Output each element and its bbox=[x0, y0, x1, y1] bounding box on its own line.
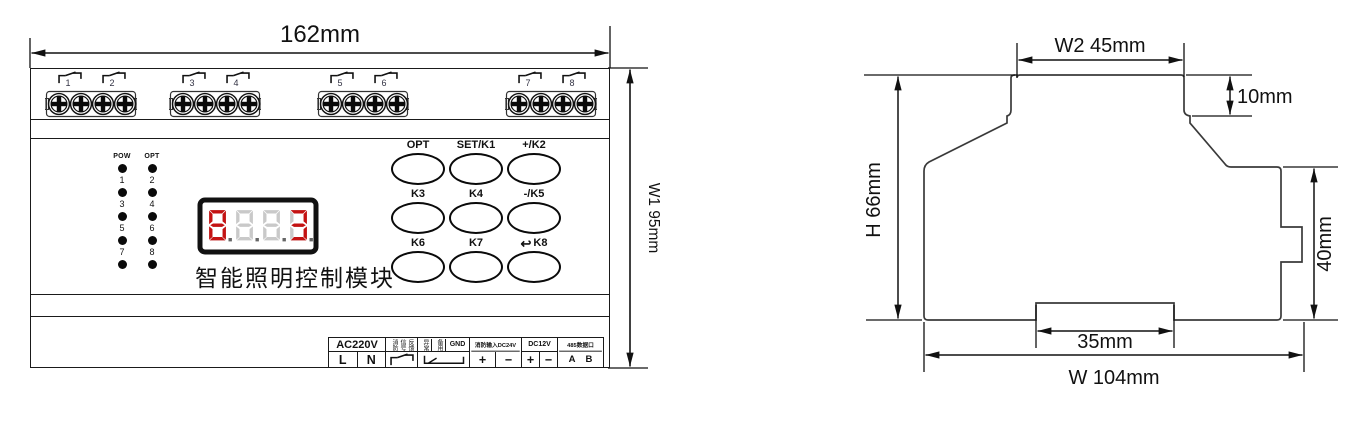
aux-gnd-terminal: 异常 备用 GND bbox=[418, 337, 470, 368]
key-k4-label: K4 bbox=[469, 188, 483, 201]
led-column-pow: POW 1 3 5 7 bbox=[107, 153, 137, 269]
led-number: 8 bbox=[149, 248, 154, 256]
pow-label: POW bbox=[113, 153, 131, 160]
terminal-group-1-2: 1 2 bbox=[45, 69, 137, 119]
key-opt-button bbox=[391, 153, 445, 185]
fire-input-label: 消防输入DC24V bbox=[471, 338, 519, 351]
screw-terminal-icon bbox=[343, 94, 364, 115]
screw-terminal-icon bbox=[239, 94, 260, 115]
rs485-terminal: 485数据口 A B bbox=[558, 337, 604, 368]
key-k3-button bbox=[391, 202, 445, 234]
minus-terminal-label: − bbox=[496, 352, 521, 367]
fire-feedback-terminal: 消防 信号 反馈 bbox=[386, 337, 418, 368]
key-set-k1-label: SET/K1 bbox=[457, 139, 496, 152]
key-minus-k5-button bbox=[507, 202, 561, 234]
back-arrow-icon: ↩ bbox=[521, 238, 532, 250]
channel-number: 3 bbox=[189, 78, 194, 88]
led-indicator bbox=[148, 236, 157, 245]
led-indicator bbox=[118, 260, 127, 269]
terminal-group-7-8: 7 8 bbox=[505, 69, 597, 119]
spare-label: 备用 bbox=[435, 339, 442, 351]
led-number: 2 bbox=[149, 176, 154, 184]
decimal-point bbox=[256, 238, 259, 241]
led-number: 3 bbox=[119, 200, 124, 208]
width-dim-label: 162mm bbox=[280, 21, 360, 48]
gnd-label: GND bbox=[446, 341, 469, 348]
channel-number: 2 bbox=[109, 78, 114, 88]
fire-feedback-label: 反馈 bbox=[406, 339, 413, 351]
front-view-module: 1 2 3 4 5 6 bbox=[30, 68, 610, 368]
led-indicator bbox=[148, 212, 157, 221]
enclosure-profile bbox=[924, 75, 1302, 320]
terminal-group-5-6: 5 6 bbox=[317, 69, 409, 119]
dim-step-label: 10mm bbox=[1237, 86, 1293, 108]
led-number: 4 bbox=[149, 200, 154, 208]
screw-terminal-icon bbox=[115, 94, 136, 115]
rs485-label: 485数据口 bbox=[559, 338, 602, 351]
led-indicator bbox=[148, 164, 157, 173]
key-k7-label: K7 bbox=[469, 237, 483, 250]
front-width-dimension: 162mm bbox=[22, 12, 622, 70]
key-k6-label: K6 bbox=[411, 237, 425, 250]
key-k3-label: K3 bbox=[411, 188, 425, 201]
led-indicator bbox=[118, 164, 127, 173]
led-number: 1 bbox=[119, 176, 124, 184]
plus-terminal-label: + bbox=[470, 352, 496, 367]
panel-divider bbox=[31, 316, 609, 317]
side-view: W2 45mm 10mm H 66mm 40mm 35mm W 104mm bbox=[852, 15, 1370, 415]
led-indicator bbox=[118, 212, 127, 221]
abnormal-label: 异常 bbox=[421, 339, 428, 351]
decimal-point bbox=[283, 238, 286, 241]
terminal-group-3-4: 3 4 bbox=[169, 69, 261, 119]
key-opt-label: OPT bbox=[407, 139, 430, 152]
key-k4-button bbox=[449, 202, 503, 234]
led-number: 7 bbox=[119, 248, 124, 256]
channel-number: 6 bbox=[381, 78, 386, 88]
dim-w-label: W 104mm bbox=[1068, 367, 1159, 389]
screw-terminal-icon bbox=[173, 94, 194, 115]
neutral-terminal-label: N bbox=[358, 352, 386, 367]
channel-number: 1 bbox=[65, 78, 70, 88]
key-k8-button bbox=[507, 251, 561, 283]
led-indicator bbox=[148, 260, 157, 269]
keypad: OPT SET/K1 +/K2 K3 K4 -/K5 K6 K7 ↩ K8 bbox=[389, 139, 565, 283]
screw-terminal-icon bbox=[49, 94, 70, 115]
dc12v-label: DC12V bbox=[522, 338, 557, 352]
key-set-k1-button bbox=[449, 153, 503, 185]
screw-terminal-icon bbox=[509, 94, 530, 115]
product-title: 智能照明控制模块 bbox=[179, 259, 411, 293]
minus-terminal-label: − bbox=[540, 352, 557, 367]
decimal-point bbox=[229, 238, 232, 241]
led-indicator bbox=[118, 236, 127, 245]
rs485-a-label: A bbox=[569, 354, 576, 365]
plus-terminal-label: + bbox=[522, 352, 540, 367]
dim-notch-label: 35mm bbox=[1077, 331, 1133, 353]
led-number: 5 bbox=[119, 224, 124, 232]
terminal-legend-strip: AC220V L N 消防 信号 反馈 异常 备用 bbox=[328, 337, 604, 368]
channel-number: 5 bbox=[337, 78, 342, 88]
screw-terminal-icon bbox=[575, 94, 596, 115]
screw-terminal-icon bbox=[217, 94, 238, 115]
screw-terminal-icon bbox=[553, 94, 574, 115]
ac-power-terminal: AC220V L N bbox=[328, 337, 386, 368]
key-k6-button bbox=[391, 251, 445, 283]
dim-w2-label: W2 45mm bbox=[1054, 35, 1145, 57]
screw-terminal-icon bbox=[93, 94, 114, 115]
channel-number: 8 bbox=[569, 78, 574, 88]
screw-terminal-icon bbox=[531, 94, 552, 115]
panel-divider bbox=[31, 119, 609, 120]
channel-number: 7 bbox=[525, 78, 530, 88]
height-dim-label: W1 95mm bbox=[645, 183, 662, 254]
decimal-point bbox=[310, 238, 313, 241]
panel-divider bbox=[31, 294, 609, 295]
contact-symbol-icon bbox=[421, 353, 467, 366]
contact-symbol-icon bbox=[389, 353, 415, 366]
screw-terminal-icon bbox=[71, 94, 92, 115]
screw-terminal-icon bbox=[365, 94, 386, 115]
front-height-dimension: W1 95mm bbox=[602, 58, 668, 383]
screw-terminal-icon bbox=[195, 94, 216, 115]
fire-feedback-label: 信号 bbox=[398, 339, 405, 351]
key-plus-k2-label: +/K2 bbox=[522, 139, 546, 152]
led-indicator bbox=[148, 188, 157, 197]
channel-number: 4 bbox=[233, 78, 238, 88]
led-indicator bbox=[118, 188, 127, 197]
seven-segment-display bbox=[197, 197, 319, 255]
dim-clip-label: 40mm bbox=[1314, 216, 1336, 272]
dc12v-terminal: DC12V + − bbox=[522, 337, 558, 368]
key-k8-label: K8 bbox=[533, 237, 547, 250]
live-terminal-label: L bbox=[329, 352, 358, 367]
fire-input-terminal: 消防输入DC24V + − bbox=[470, 337, 522, 368]
led-number: 6 bbox=[149, 224, 154, 232]
ac220v-label: AC220V bbox=[329, 338, 385, 352]
dim-h-label: H 66mm bbox=[863, 162, 885, 238]
key-plus-k2-button bbox=[507, 153, 561, 185]
rs485-b-label: B bbox=[586, 354, 593, 365]
screw-terminal-icon bbox=[321, 94, 342, 115]
technical-drawing: 162mm W1 95mm 1 2 bbox=[0, 0, 1370, 424]
screw-terminal-icon bbox=[387, 94, 408, 115]
opt-label: OPT bbox=[144, 153, 159, 160]
led-column-opt: OPT 2 4 6 8 bbox=[137, 153, 167, 269]
fire-feedback-label: 消防 bbox=[390, 339, 397, 351]
key-minus-k5-label: -/K5 bbox=[524, 188, 545, 201]
key-k7-button bbox=[449, 251, 503, 283]
